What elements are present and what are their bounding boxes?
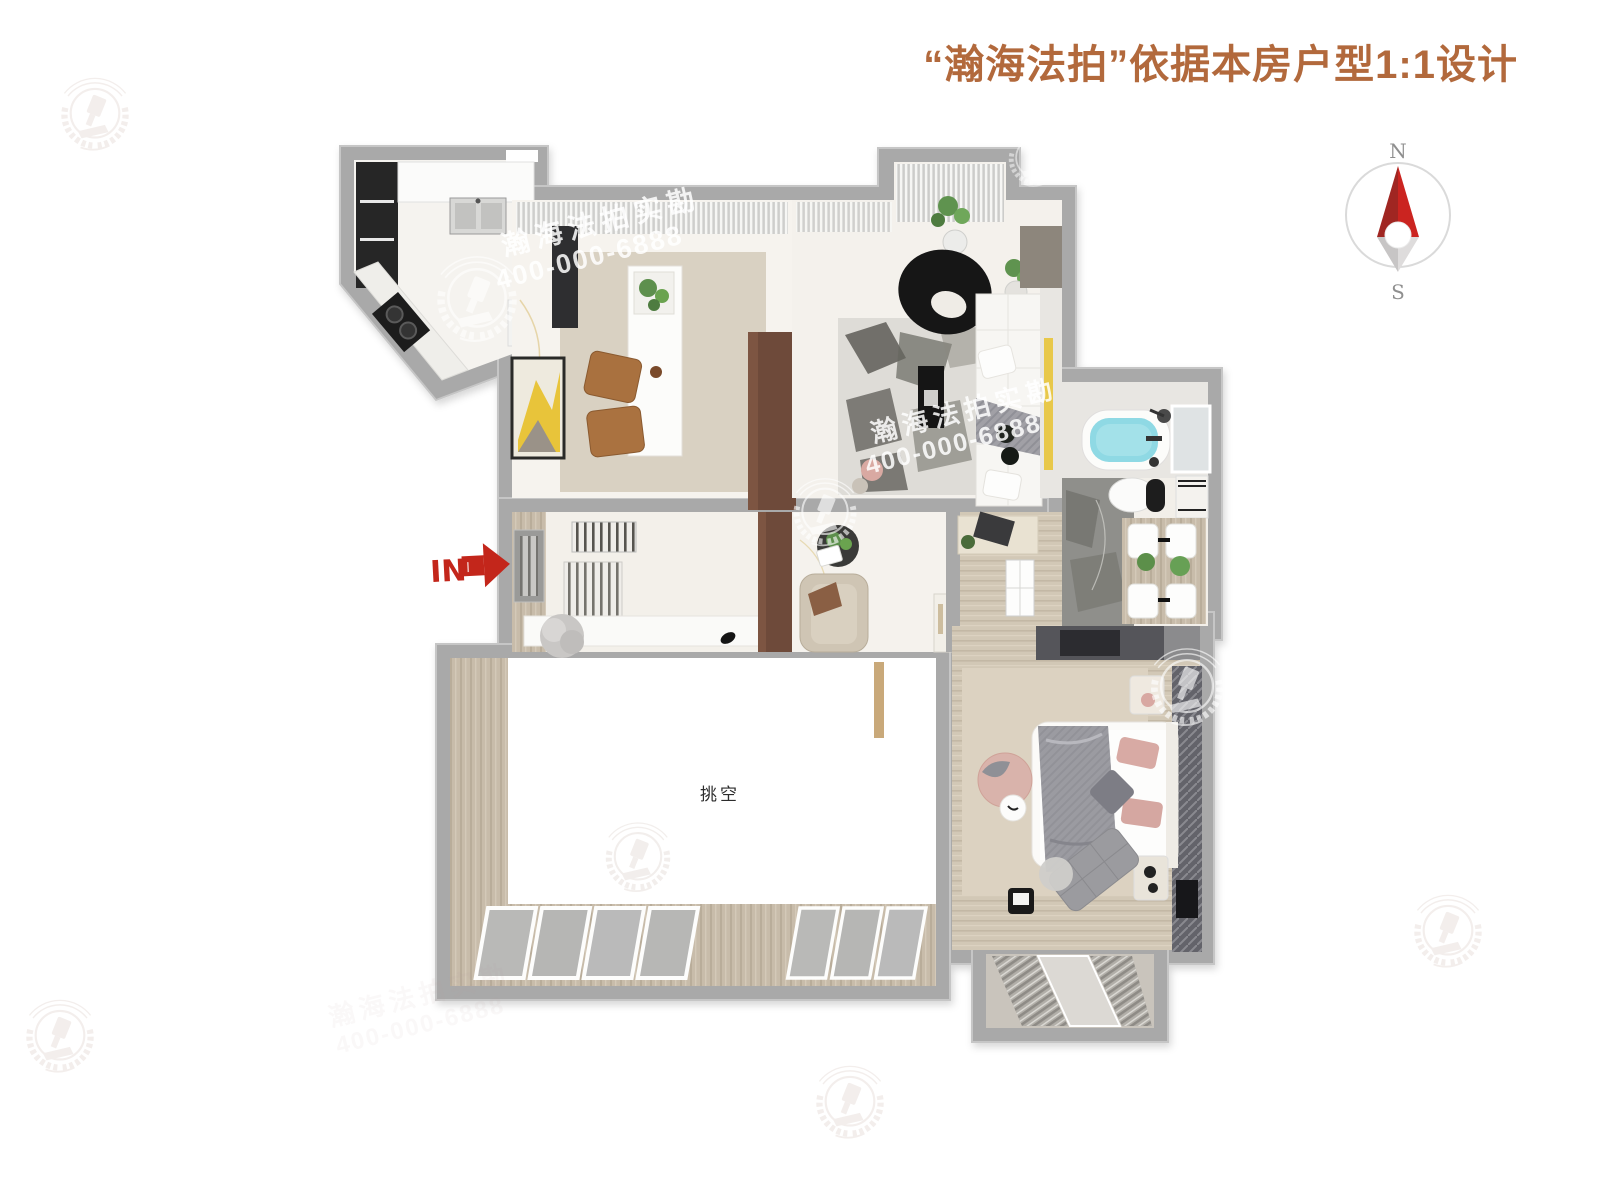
dining-tv-column (552, 226, 578, 328)
void-room-label: 挑空 (700, 780, 740, 805)
wreath-logo (819, 1066, 880, 1137)
pink-vase (861, 459, 883, 481)
kitchen-sink (450, 198, 506, 234)
compass: N S (1346, 139, 1450, 304)
towel-shelf (1176, 476, 1208, 518)
desk (958, 512, 1038, 554)
wreath-logo (29, 1000, 90, 1071)
living-room (792, 162, 1062, 506)
hanging-strip (874, 662, 884, 738)
study-room (512, 512, 792, 658)
page-title: “瀚海法拍”依据本房户型1:1设计 (923, 32, 1518, 90)
fluffy-throw (1039, 857, 1073, 891)
bathroom (1062, 382, 1210, 626)
nightstand-top (1130, 676, 1164, 714)
skylights-right (788, 908, 926, 978)
dining-room (512, 200, 796, 510)
yellow-door-strip (1044, 338, 1053, 470)
compass-north-label: N (1389, 139, 1407, 163)
pink-pillow-2 (1120, 797, 1163, 828)
wreath-logo (1417, 895, 1478, 966)
nightstand-bottom (1134, 856, 1168, 900)
floor-window (1006, 560, 1034, 616)
tv-wall-wood (1020, 226, 1062, 288)
compass-south-label: S (1391, 280, 1405, 304)
floorplan-canvas: N S IN (0, 0, 1600, 1200)
radiator-panel (572, 522, 636, 552)
fluffy-pouf (540, 614, 584, 658)
toilet (1109, 478, 1165, 512)
compass-hub (1385, 222, 1411, 248)
sofa (976, 294, 1042, 506)
vanity (1122, 518, 1206, 624)
white-side-table (1000, 795, 1026, 821)
stair-alcove (986, 954, 1154, 1028)
bedroom-tv (1176, 880, 1198, 918)
floorplan-page: N S IN “瀚海法拍”依据本房户型1:1设计 挑空 瀚海法拍实勘 400-0… (0, 0, 1600, 1200)
wreath-logo (64, 78, 125, 149)
dining-chair-2 (586, 405, 645, 457)
void-room (450, 658, 936, 986)
thermostat (1008, 888, 1034, 914)
beige-armchair (800, 574, 868, 652)
wall-art-yellow (512, 358, 564, 458)
slat-screen (564, 562, 622, 624)
kitchen (354, 150, 538, 380)
